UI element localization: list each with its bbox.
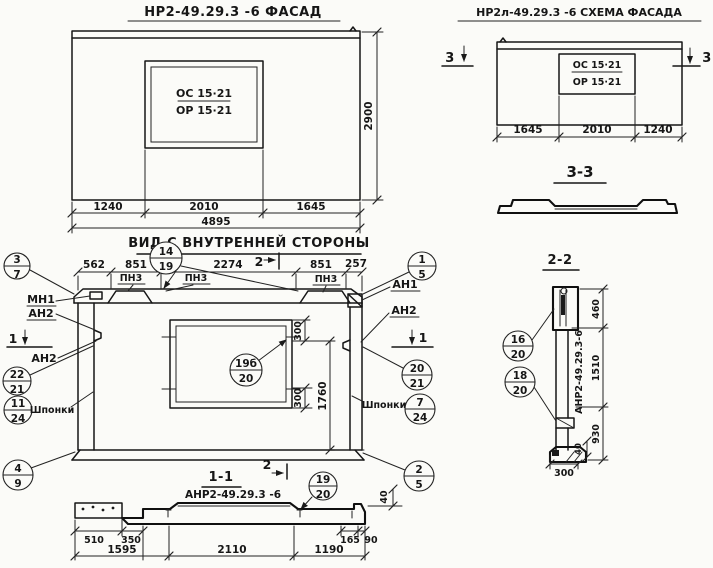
facade-title: НР2-49.29.3 -6 ФАСАД — [144, 5, 322, 20]
svg-text:24: 24 — [413, 412, 428, 424]
window-mark-top: ОС 15·21 — [176, 87, 232, 100]
technical-drawing: НР2-49.29.3 -6 ФАСАД ОС 15·21 ОР 15·21 2… — [0, 0, 713, 568]
scheme-mark-top: ОС 15·21 — [573, 60, 621, 71]
callout-20-21: 20 21 — [363, 347, 432, 390]
svg-text:21: 21 — [10, 384, 25, 396]
facade-dim-left: 1240 — [93, 201, 122, 213]
scheme-view: НР2л-49.29.3 -6 СХЕМА ФАСАДА ОС 15·21 ОР… — [442, 6, 712, 142]
ledge-dim-value: 40 — [379, 490, 390, 504]
pn3-label-3: ПН3 — [315, 274, 338, 285]
inner-dim-3: 851 — [310, 259, 332, 271]
cut-3-label-right: 3 — [702, 51, 712, 66]
section-1-1-label: АНР2-49.29.3 -6 — [185, 489, 281, 501]
section-1-1-title: 1-1 — [209, 470, 234, 485]
inner-dim-1: 851 — [125, 259, 147, 271]
scheme-dim-mid: 2010 — [582, 124, 611, 136]
callout-3-7: 3 7 — [4, 253, 74, 294]
window-mark-bottom: ОР 15·21 — [176, 104, 232, 117]
cut-3-marker-right: 3 — [673, 48, 712, 66]
pn3-label-2: ПН3 — [185, 273, 208, 284]
cut-1-marker-left: 1 — [7, 330, 52, 347]
win-dim-bottom: 300 — [293, 388, 304, 408]
pn3-label-1: ПН3 — [120, 273, 143, 284]
dim-90: 90 — [364, 535, 378, 546]
callout-2-5: 2 5 — [363, 453, 434, 491]
facade-dim-right: 1645 — [296, 201, 325, 213]
svg-text:18: 18 — [513, 370, 528, 382]
cut-3-label-left: 3 — [445, 51, 455, 66]
callout-18-20: 18 20 — [505, 367, 556, 421]
svg-text:20: 20 — [410, 363, 425, 375]
an2-label-left-top: АН2 — [27, 307, 95, 330]
drawing-sheet: НР2-49.29.3 -6 ФАСАД ОС 15·21 ОР 15·21 2… — [0, 0, 713, 568]
dim-2110: 2110 — [217, 544, 246, 556]
scheme-dim-right: 1240 — [643, 124, 672, 136]
section-2-2-title: 2-2 — [548, 253, 573, 268]
svg-text:МН1: МН1 — [27, 293, 55, 306]
callout-7-24: Шпонки 7 24 — [352, 394, 435, 424]
dim-930: 930 — [591, 424, 602, 444]
svg-text:7: 7 — [416, 397, 423, 409]
win-dim-height: 1760 — [317, 381, 329, 410]
svg-text:7: 7 — [13, 269, 20, 281]
mn1-label: МН1 — [27, 293, 90, 306]
dim-510: 510 — [84, 535, 104, 546]
section-2-2-vertical-label: АНР2-49.29.3-6 — [574, 330, 585, 414]
dim-40: 40 — [574, 443, 584, 455]
callout-19b-20: 19б 20 — [230, 340, 286, 386]
callout-19-20: 19 20 — [301, 472, 337, 509]
svg-text:19б: 19б — [235, 358, 257, 370]
svg-text:АН2: АН2 — [391, 304, 416, 317]
svg-text:2: 2 — [415, 464, 422, 476]
dim-1595: 1595 — [107, 544, 136, 556]
inner-dim-4: 257 — [345, 258, 367, 270]
keys-label-right: Шпонки — [362, 400, 407, 411]
section-1-1-profile — [75, 503, 365, 524]
callout-4-9: 4 9 — [3, 452, 75, 490]
facade-dim-total: 4895 — [201, 216, 230, 228]
facade-dim-height: 2900 — [363, 101, 375, 130]
inner-dim-0: 562 — [83, 259, 105, 271]
svg-text:20: 20 — [511, 349, 526, 361]
cut-1-label-left: 1 — [9, 331, 18, 346]
an2-label-right: АН2 — [361, 304, 419, 342]
svg-text:19: 19 — [316, 474, 331, 486]
cut-2-marker-top: 2 — [255, 253, 279, 269]
inner-dim-2: 2274 — [213, 259, 242, 271]
scheme-dim-left: 1645 — [513, 124, 542, 136]
dim-460: 460 — [591, 299, 602, 319]
cut-2-label-bottom: 2 — [263, 457, 272, 472]
svg-text:19: 19 — [159, 261, 174, 273]
section-3-3-title: 3-3 — [566, 163, 593, 181]
keys-label-left: Шпонки — [30, 405, 75, 416]
svg-text:1: 1 — [418, 254, 425, 266]
svg-text:22: 22 — [10, 369, 25, 381]
callout-11-24: 11 24 Шпонки — [4, 392, 93, 425]
svg-text:АН2: АН2 — [28, 307, 53, 320]
svg-text:4: 4 — [14, 463, 21, 475]
an1-label: АН1 — [362, 278, 420, 300]
scheme-window: ОС 15·21 ОР 15·21 — [559, 54, 635, 94]
an2-label-left-mid: АН2 — [31, 341, 96, 365]
facade-view: НР2-49.29.3 -6 ФАСАД ОС 15·21 ОР 15·21 2… — [68, 5, 383, 233]
svg-text:16: 16 — [511, 334, 526, 346]
section-2-2: 2-2 АНР2-49.29.3-6 — [503, 253, 608, 479]
svg-text:20: 20 — [513, 385, 528, 397]
cut-1-marker-right: 1 — [392, 330, 433, 347]
svg-text:14: 14 — [159, 246, 174, 258]
svg-text:5: 5 — [415, 479, 422, 491]
svg-text:21: 21 — [410, 378, 425, 390]
svg-text:24: 24 — [11, 413, 26, 425]
dim-300-width: 300 — [554, 468, 574, 479]
section-1-1: 1-1 АНР2-49.29.3 -6 19 20 — [71, 470, 378, 560]
svg-text:20: 20 — [239, 373, 254, 385]
cut-2-label-top: 2 — [255, 254, 264, 269]
inner-view: ВИД С ВНУТРЕННЕЙ СТОРОНЫ 562 851 2274 85… — [3, 235, 436, 510]
svg-text:АН1: АН1 — [392, 278, 417, 291]
facade-dim-mid: 2010 — [189, 201, 218, 213]
scheme-title: НР2л-49.29.3 -6 СХЕМА ФАСАДА — [476, 6, 682, 19]
inner-panel-outline — [72, 289, 364, 460]
cut-1-label-right: 1 — [419, 330, 428, 345]
svg-text:20: 20 — [316, 489, 331, 501]
svg-text:5: 5 — [418, 269, 425, 281]
scheme-mark-bottom: ОР 15·21 — [573, 77, 621, 88]
dim-1510: 1510 — [591, 354, 602, 381]
svg-text:9: 9 — [14, 478, 21, 490]
cut-3-marker-left: 3 — [442, 46, 473, 66]
dim-1190: 1190 — [314, 544, 343, 556]
svg-text:3: 3 — [13, 254, 20, 266]
section-3-3: 3-3 — [498, 163, 677, 213]
win-dim-top: 300 — [293, 321, 304, 341]
facade-window: ОС 15·21 ОР 15·21 — [145, 61, 263, 148]
callout-16-20: 16 20 — [503, 309, 554, 361]
svg-text:АН2: АН2 — [31, 352, 56, 365]
svg-text:11: 11 — [11, 398, 26, 410]
